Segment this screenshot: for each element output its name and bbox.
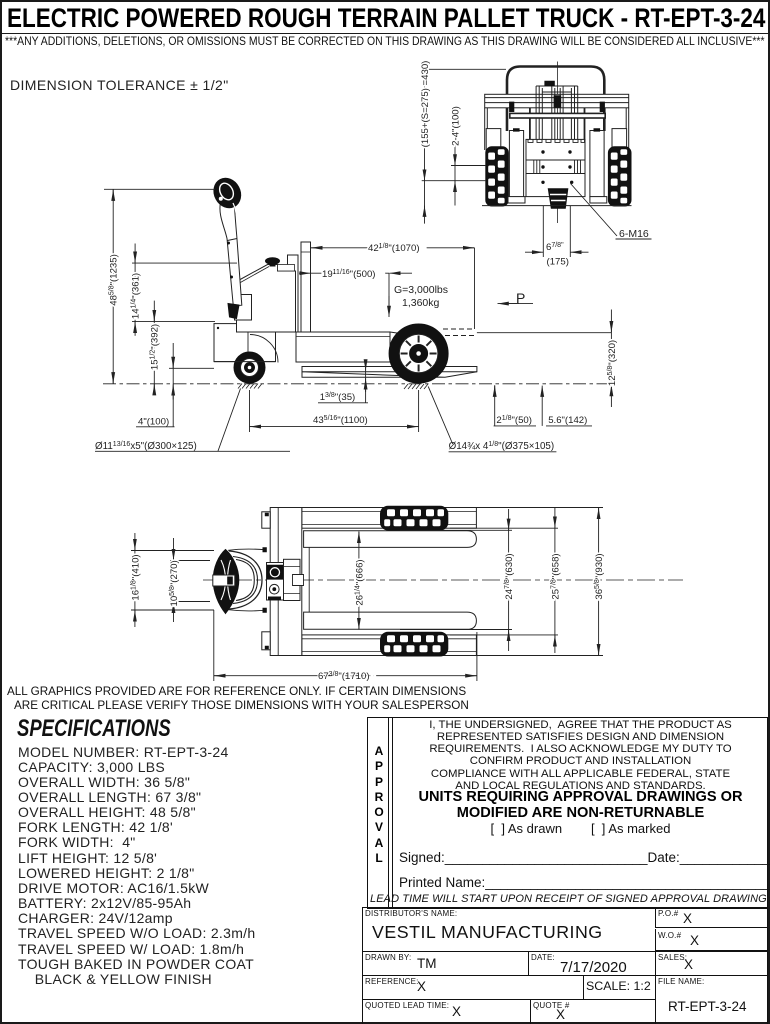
svg-text:105/8"(270): 105/8"(270) [169,560,180,606]
svg-text:13/8"(35): 13/8"(35) [320,392,356,403]
svg-text:Ø14¾x 41/8"(Ø375×105): Ø14¾x 41/8"(Ø375×105) [449,441,555,452]
svg-text:67/8": 67/8" [546,242,564,253]
svg-text:(155+(S=275) =430): (155+(S=275) =430) [420,61,431,148]
svg-text:(175): (175) [547,257,569,268]
svg-text:125/8"(320): 125/8"(320) [607,340,618,386]
svg-text:1911/16"(500): 1911/16"(500) [322,269,375,280]
svg-text:6-M16: 6-M16 [619,228,649,240]
svg-text:485/8"(1235): 485/8"(1235) [109,254,120,306]
svg-text:435/16"(1100): 435/16"(1100) [313,415,368,426]
svg-text:5.6"(142): 5.6"(142) [548,415,587,426]
svg-text:257/8"(658): 257/8"(658) [550,553,561,599]
svg-text:2-4"(100): 2-4"(100) [450,106,461,146]
svg-text:673/8"(1710): 673/8"(1710) [318,671,370,682]
svg-text:161/8"(410): 161/8"(410) [130,554,141,600]
svg-text:21/8"(50): 21/8"(50) [496,415,532,426]
svg-text:421/8"(1070): 421/8"(1070) [368,243,420,254]
svg-text:1,360kg: 1,360kg [402,297,440,309]
svg-text:141/4"(361): 141/4"(361) [131,273,142,319]
svg-text:G=3,000lbs: G=3,000lbs [394,284,448,296]
svg-text:365/8"(930): 365/8"(930) [594,553,605,599]
svg-text:Ø1113/16x5"(Ø300×125): Ø1113/16x5"(Ø300×125) [95,441,197,452]
svg-text:4"(100): 4"(100) [138,417,169,428]
svg-text:261/4"(666): 261/4"(666) [354,559,365,605]
svg-text:247/8"(630): 247/8"(630) [504,553,515,599]
svg-text:151/2"(392): 151/2"(392) [150,324,161,370]
